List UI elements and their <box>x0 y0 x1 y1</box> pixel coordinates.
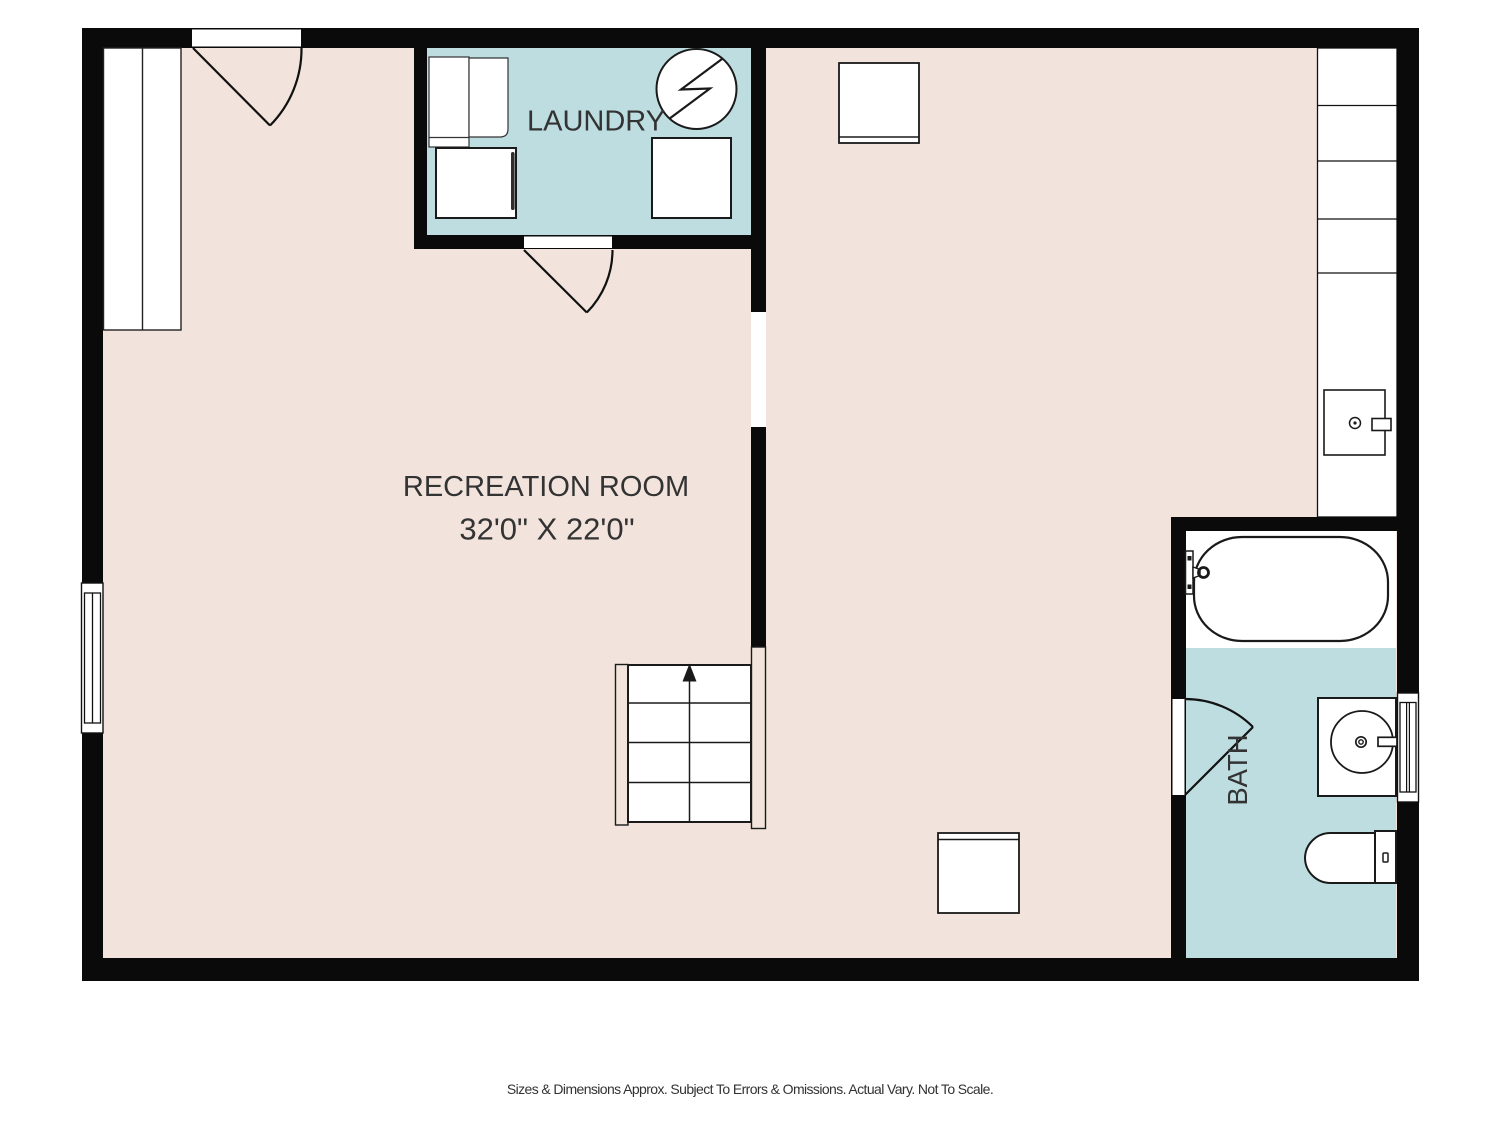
svg-text:32'0" X 22'0": 32'0" X 22'0" <box>459 512 634 547</box>
svg-text:BATH: BATH <box>1222 734 1253 805</box>
svg-text:Sizes & Dimensions Approx. Sub: Sizes & Dimensions Approx. Subject To Er… <box>507 1081 993 1097</box>
svg-text:LAUNDRY: LAUNDRY <box>527 106 665 138</box>
svg-text:RECREATION ROOM: RECREATION ROOM <box>403 471 689 503</box>
